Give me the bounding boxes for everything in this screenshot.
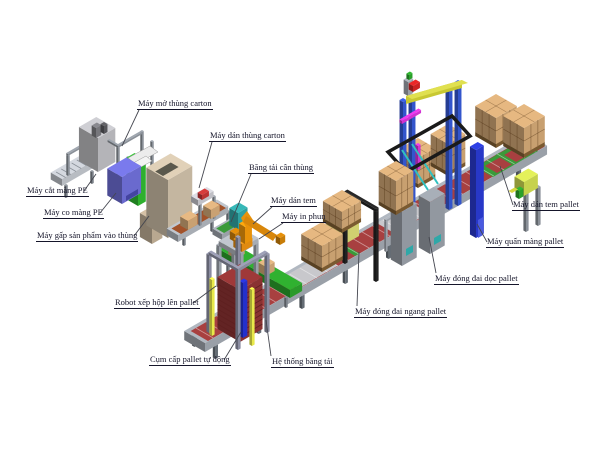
leader-line [231, 174, 251, 222]
label-may-dan-tem: Máy dán tem [270, 195, 317, 207]
leader-line [266, 320, 271, 356]
leader-line [429, 237, 436, 273]
label-may-dong-dai-doc: Máy đóng đai dọc pallet [434, 273, 519, 285]
label-may-in-phun: Máy in phun [281, 211, 326, 223]
leader-line [259, 223, 283, 239]
diagram-canvas: Máy mở thùng carton Máy dán thùng carton… [0, 0, 600, 466]
leader-line [253, 207, 272, 224]
leader-line [122, 110, 139, 146]
label-bang-tai-can-thung: Băng tải cân thùng [248, 162, 314, 174]
label-may-quan-mang-pallet: Máy quấn màng pallet [486, 236, 564, 248]
label-cum-cap-pallet: Cụm cấp pallet tự động [149, 354, 231, 366]
label-may-dan-tem-pallet: Máy dán tem pallet [512, 199, 580, 211]
label-may-dan-thung-carton: Máy dán thùng carton [209, 130, 286, 142]
leader-line [199, 142, 212, 188]
label-may-dong-dai-ngang: Máy đóng đai ngang pallet [354, 306, 447, 318]
label-may-co-mang-pe: Máy co màng PE [43, 207, 104, 219]
leader-line [357, 252, 359, 306]
label-may-cat-mang-pe: Máy cắt màng PE [26, 185, 89, 197]
label-may-mo-thung-carton: Máy mở thùng carton [137, 98, 213, 110]
label-he-thong-bang-tai: Hệ thống băng tải [271, 356, 334, 368]
label-may-gap-san-pham: Máy gấp sản phẩm vào thùng [36, 230, 138, 242]
label-robot-xep-hop: Robot xếp hộp lên pallet [114, 297, 200, 309]
